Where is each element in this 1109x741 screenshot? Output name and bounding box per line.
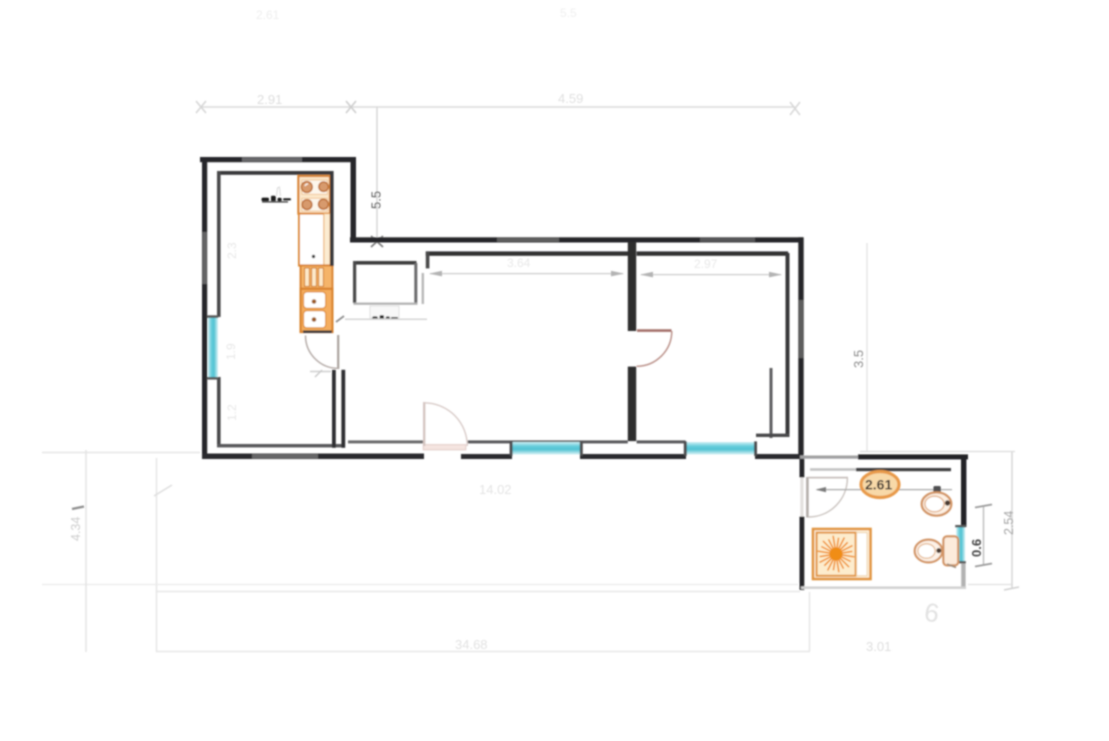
svg-text:2.61: 2.61: [256, 8, 280, 22]
svg-text:5.5: 5.5: [369, 191, 384, 209]
svg-text:2.54: 2.54: [1002, 511, 1016, 535]
svg-text:1.9: 1.9: [224, 343, 238, 360]
svg-text:4.34: 4.34: [69, 517, 83, 541]
svg-text:2.91: 2.91: [257, 92, 282, 107]
svg-text:6: 6: [923, 597, 942, 629]
svg-text:2.3: 2.3: [225, 242, 239, 259]
svg-text:2.61: 2.61: [865, 477, 892, 493]
svg-text:1.2: 1.2: [225, 404, 239, 421]
svg-text:2.97: 2.97: [694, 257, 718, 271]
svg-text:14.02: 14.02: [479, 482, 512, 497]
svg-text:4.59: 4.59: [558, 91, 583, 106]
svg-text:3.01: 3.01: [866, 639, 891, 654]
svg-text:0.6: 0.6: [969, 539, 984, 557]
svg-text:3.64: 3.64: [507, 256, 531, 270]
svg-text:34.68: 34.68: [455, 637, 488, 652]
svg-text:3.5: 3.5: [851, 350, 866, 368]
svg-text:5.5: 5.5: [560, 6, 577, 20]
